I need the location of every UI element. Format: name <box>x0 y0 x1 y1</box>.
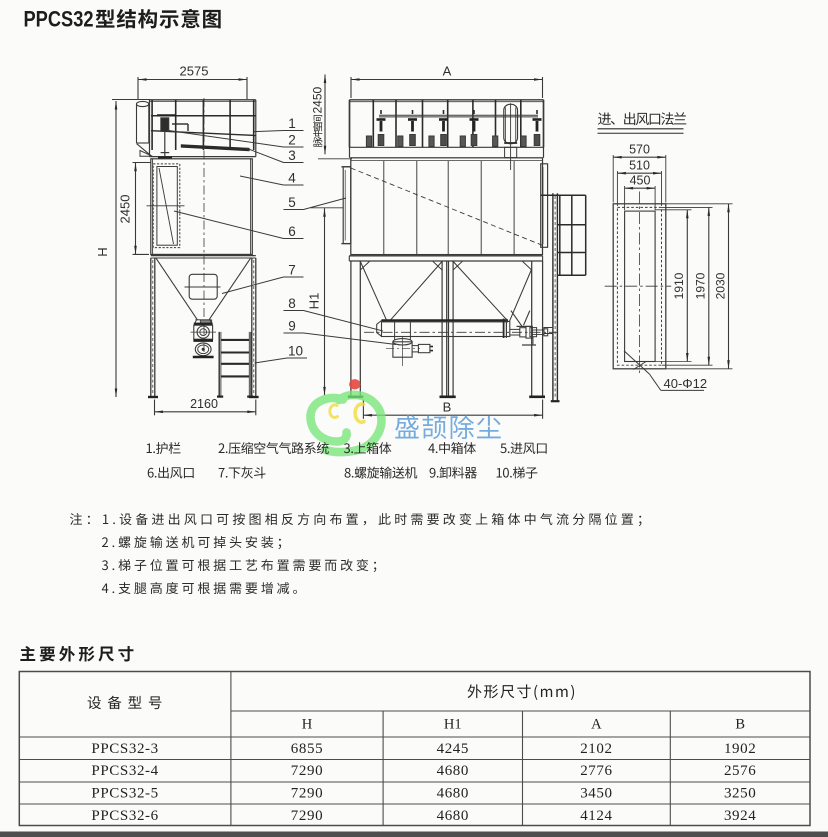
svg-text:2030: 2030 <box>713 272 727 299</box>
svg-text:6: 6 <box>288 224 296 239</box>
svg-text:4680: 4680 <box>437 808 469 824</box>
svg-text:B: B <box>735 717 745 733</box>
svg-text:6855: 6855 <box>291 741 323 757</box>
svg-text:2576: 2576 <box>724 763 756 779</box>
svg-text:H1: H1 <box>444 717 462 733</box>
svg-text:9: 9 <box>288 319 296 334</box>
svg-text:4: 4 <box>288 171 296 186</box>
svg-text:450: 450 <box>630 174 651 188</box>
svg-text:5: 5 <box>288 195 296 210</box>
svg-text:2575: 2575 <box>180 64 209 79</box>
svg-text:PPCS32-4: PPCS32-4 <box>91 763 158 779</box>
svg-text:2: 2 <box>288 133 296 148</box>
svg-text:1970: 1970 <box>694 272 708 299</box>
svg-text:PPCS32-3: PPCS32-3 <box>91 741 158 757</box>
svg-text:3: 3 <box>288 148 296 163</box>
svg-text:1910: 1910 <box>672 272 686 299</box>
svg-text:4245: 4245 <box>437 741 469 757</box>
svg-text:2102: 2102 <box>580 741 612 757</box>
svg-text:B: B <box>443 400 452 415</box>
svg-text:4680: 4680 <box>437 763 469 779</box>
svg-text:2450: 2450 <box>118 195 133 224</box>
svg-text:4124: 4124 <box>580 808 612 824</box>
svg-text:H1: H1 <box>307 293 322 310</box>
svg-text:10: 10 <box>288 344 303 359</box>
svg-text:A: A <box>591 717 602 733</box>
svg-text:3450: 3450 <box>580 786 612 802</box>
svg-text:7290: 7290 <box>291 786 323 802</box>
svg-text:1902: 1902 <box>724 741 756 757</box>
svg-text:2776: 2776 <box>580 763 612 779</box>
svg-text:3924: 3924 <box>724 808 756 824</box>
svg-text:7: 7 <box>288 263 296 278</box>
svg-text:4680: 4680 <box>437 786 469 802</box>
svg-text:3250: 3250 <box>724 786 756 802</box>
svg-text:H: H <box>302 717 313 733</box>
svg-text:PPCS32-5: PPCS32-5 <box>91 786 158 802</box>
svg-text:2160: 2160 <box>190 397 218 411</box>
svg-text:1: 1 <box>288 116 296 131</box>
svg-text:PPCS32-6: PPCS32-6 <box>91 808 158 824</box>
svg-text:8: 8 <box>288 296 296 311</box>
svg-text:7290: 7290 <box>291 763 323 779</box>
svg-text:40-Φ12: 40-Φ12 <box>664 376 708 391</box>
svg-text:2450: 2450 <box>311 86 325 113</box>
svg-text:7290: 7290 <box>291 808 323 824</box>
svg-text:A: A <box>443 64 452 79</box>
svg-text:510: 510 <box>629 159 650 173</box>
svg-text:PPCS32: PPCS32 <box>24 7 94 32</box>
svg-text:570: 570 <box>629 143 650 157</box>
svg-text:H: H <box>95 247 110 256</box>
